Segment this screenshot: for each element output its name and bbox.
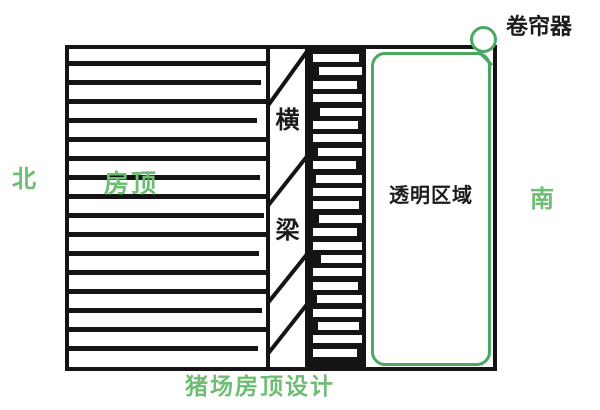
roof-board-line — [69, 194, 266, 199]
vent-slat — [313, 188, 362, 196]
beam-label-top: 横 — [270, 109, 305, 133]
vent-slat — [313, 268, 362, 276]
roof-label: 房顶 — [104, 172, 158, 197]
roof-board-line — [69, 137, 266, 142]
vent-slat — [313, 134, 362, 142]
vent-slat — [313, 335, 362, 343]
roof-board-line — [69, 61, 266, 66]
roof-board-line — [69, 118, 257, 123]
transparent-area-label: 透明区域 — [374, 179, 488, 208]
vent-slat — [318, 148, 362, 156]
vent-slats — [309, 49, 366, 367]
roof-board-line — [69, 327, 266, 332]
vent-slat — [318, 322, 359, 330]
roof-board-line — [69, 175, 260, 180]
roof-board-line — [69, 289, 266, 294]
roof-boards — [69, 49, 266, 367]
roof-board-line — [69, 251, 259, 256]
roof-board-line — [69, 308, 262, 313]
beam-label-bottom: 梁 — [270, 219, 305, 243]
vent-slat — [313, 121, 358, 129]
vent-slat — [313, 201, 359, 209]
roof-board-line — [69, 213, 264, 218]
vent-slat — [313, 242, 362, 250]
roof-board-line — [69, 99, 266, 104]
diagram-title: 猪场房顶设计 — [150, 375, 370, 398]
vent-slat — [313, 228, 357, 236]
vent-slat — [313, 161, 356, 169]
north-label: 北 — [12, 168, 36, 192]
vent-slat — [313, 54, 359, 62]
beam-diagonal-lines — [270, 49, 305, 367]
vent-slat — [317, 295, 362, 303]
roof-board-line — [69, 270, 266, 275]
vent-slat — [320, 108, 362, 116]
beam-column: 横 梁 — [266, 49, 309, 367]
roller-shutter-label: 卷帘器 — [506, 16, 572, 38]
roof-board-line — [69, 156, 266, 161]
vent-slat — [313, 81, 357, 89]
vent-slat — [313, 94, 362, 102]
vent-slat — [313, 282, 358, 290]
roller-shutter-icon — [470, 26, 497, 53]
vent-slat — [321, 255, 362, 263]
south-label: 南 — [530, 188, 554, 212]
pig-farm-roof-diagram: 横 梁 透明区域 北 南 房顶 卷帘器 猪场房顶设计 — [0, 0, 600, 410]
transparent-area: 透明区域 — [371, 52, 491, 366]
vent-slat — [319, 215, 362, 223]
vent-slat — [319, 67, 362, 75]
vent-slat — [316, 175, 362, 183]
vent-slat — [313, 309, 362, 317]
roof-board-line — [69, 346, 258, 351]
roof-board-line — [69, 80, 261, 85]
roof-board-line — [69, 232, 266, 237]
vent-slat — [313, 349, 357, 357]
